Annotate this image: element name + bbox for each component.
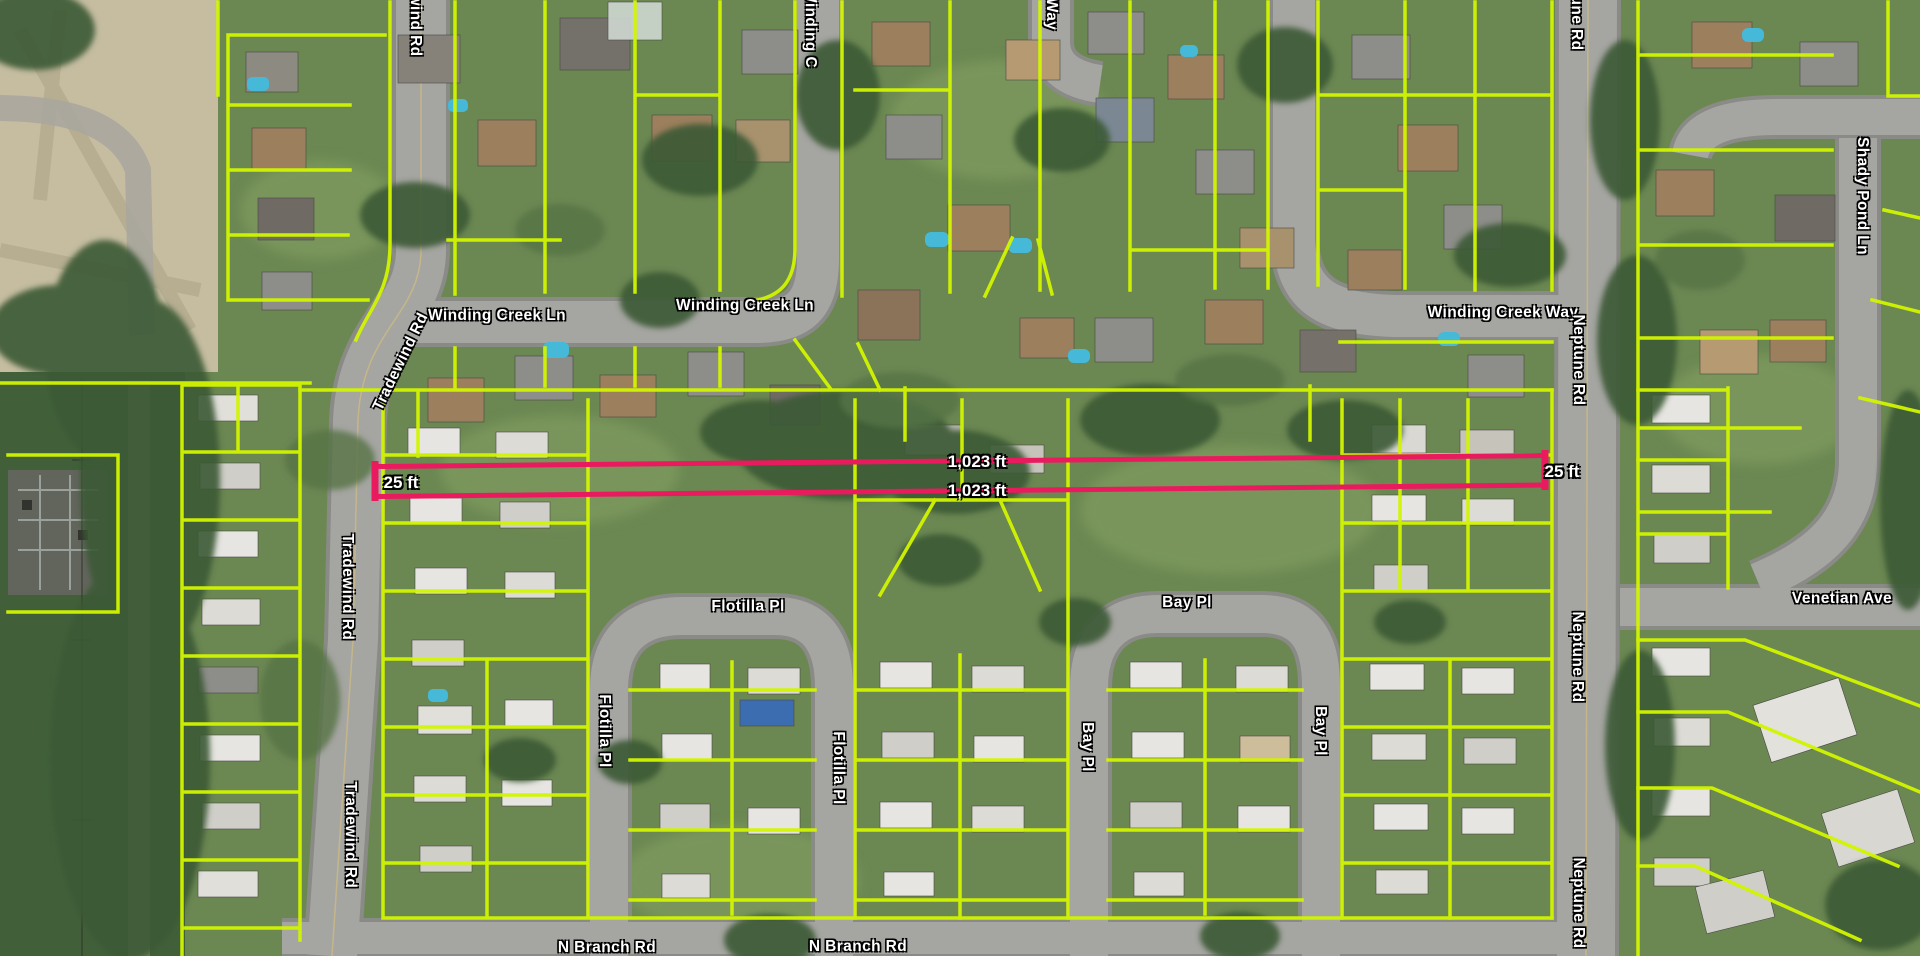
aerial-imagery: [0, 0, 1920, 956]
aerial-map-canvas[interactable]: wind Rd Winding Creek Ln Winding Creek L…: [0, 0, 1920, 956]
